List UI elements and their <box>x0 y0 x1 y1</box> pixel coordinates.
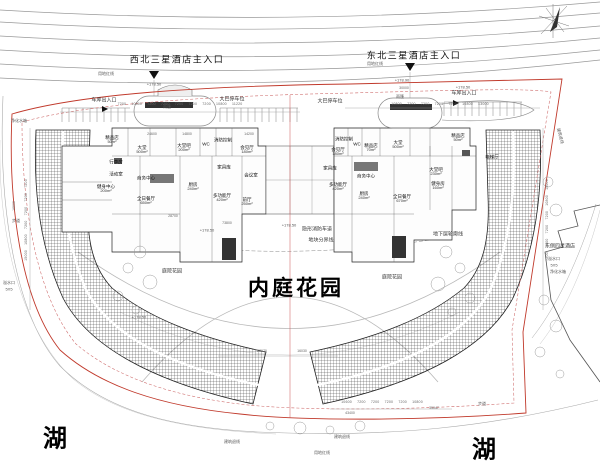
overflow-label: 溢水口 <box>548 256 560 262</box>
overflow-size-label: 5X5 <box>5 287 12 292</box>
walkway-label: 步道 <box>478 401 486 407</box>
elevation-mark: +178.50 <box>456 85 471 90</box>
setback-line-label: 建筑退线 <box>334 434 350 440</box>
basement-outline-label: 地下层轮廓线 <box>433 231 463 238</box>
dimension-text: 14200 <box>244 132 254 136</box>
room-label: 厨房240m² <box>187 182 198 192</box>
dimension-text: 30000 <box>399 86 409 90</box>
dimension-text: 28700 <box>168 214 178 218</box>
canopy-label: 雨篷 <box>396 94 404 100</box>
room-label: 健身房160m² <box>431 181 445 191</box>
room-label: WC <box>353 141 361 146</box>
water-tank-label: 净化水箱 <box>550 269 566 275</box>
overflow-size-label: 5X5 <box>550 263 557 268</box>
red-line-label: 用地红线 <box>314 450 330 456</box>
west-garage-arrow-icon <box>102 106 108 112</box>
adjacent-building-outline <box>545 205 600 382</box>
room-label: 消防控制 <box>214 137 232 142</box>
west-building <box>62 128 266 262</box>
lake-label-east: 湖 <box>472 430 496 465</box>
east-hotel-label: 东侧四星酒店 <box>545 243 575 250</box>
dimension-text: 7200 7200 7200 7200 10800 15000 <box>545 179 549 261</box>
room-label: 家具库 <box>323 165 337 170</box>
room-label: 精品店70m² <box>364 143 378 153</box>
room-label: 全日餐厅670m² <box>393 194 411 204</box>
courtyard-garden-label: 庭院花园 <box>162 268 182 275</box>
red-line-label: 用地红线 <box>98 71 114 77</box>
walkway-label: 步道 <box>12 218 20 224</box>
dimension-text: 43400 <box>345 411 355 415</box>
dimension-text: 24600 <box>147 132 157 136</box>
room-label: 大堂500m² <box>136 145 147 155</box>
room-label: 会见厅180m² <box>331 147 345 157</box>
room-label: 行李房 <box>109 159 123 164</box>
room-label: 多功能厅420m² <box>329 182 347 192</box>
ne-entrance-label: 东北三星酒店主入口 <box>367 49 462 62</box>
dimension-text: 10000 <box>12 201 16 211</box>
room-label: 全日餐厅650m² <box>137 196 155 206</box>
elevation-mark: +178.50 <box>282 223 297 228</box>
property-red-line <box>11 79 562 419</box>
room-label: 商务中心 <box>137 175 155 180</box>
elevation-mark: +178.50 <box>132 315 147 320</box>
water-tank-label: 净化水箱 <box>11 118 27 124</box>
dimension-text: 73800 <box>222 221 232 225</box>
site-plan: 西北三星酒店主入口 东北三星酒店主入口 用地红线 用地红线 用地红线 建筑退线 … <box>0 0 600 471</box>
red-line-label: 用地红线 <box>367 61 383 67</box>
garage-entrance-label: 车库出入口 <box>451 90 476 97</box>
center-link-block <box>266 146 334 214</box>
dimension-text: 10600 7200 7200 7200 7200 10800 <box>341 400 423 404</box>
setback-line-label: 建筑退线 <box>224 439 240 445</box>
elevation-mark: +178.50 <box>200 228 215 233</box>
dimension-text: 16030 <box>297 349 307 353</box>
room-label: 会议室 <box>244 172 258 177</box>
room-label: 厨房240m² <box>358 191 369 201</box>
room-label: 大堂500m² <box>392 140 403 150</box>
lake-label-west: 湖 <box>43 419 67 454</box>
public-buildings <box>62 128 476 262</box>
dimension-text: 10800 7200 7200 7200 7200 10800 13000 <box>391 102 489 106</box>
dimension-text: 35047 <box>429 406 439 410</box>
elevation-mark: +178.90 <box>395 78 410 83</box>
dimension-text: 15000 10800 7200 7200 7200 7200 <box>24 179 28 261</box>
site-plan-drawing <box>0 0 600 471</box>
red-boundary-lines <box>11 79 562 419</box>
room-label: 前厅250m² <box>241 197 252 207</box>
fire-lane-label: 隐形消防车道 <box>302 226 332 233</box>
dimension-text: 14800 <box>182 132 192 136</box>
room-label: 电梯厅 <box>485 154 499 159</box>
overflow-label: 溢水口 <box>3 280 15 286</box>
room-label: 精品店50m² <box>105 135 119 145</box>
room-label: 会见厅180m² <box>240 145 254 155</box>
bus-parking-label: 大巴停车位 <box>317 98 342 105</box>
room-label: 多功能厅420m² <box>213 193 231 203</box>
inner-garden-title: 内庭花园 <box>248 272 344 302</box>
room-label: 家具库 <box>217 164 231 169</box>
nw-entrance-label: 西北三星酒店主入口 <box>130 53 225 66</box>
room-label: 消防控制 <box>335 136 353 141</box>
setback-dashed-line <box>22 90 551 409</box>
elevation-mark: +178.50 <box>147 82 162 87</box>
courtyard-garden-label: 庭院花园 <box>382 274 402 281</box>
room-label: 健身中心200m² <box>97 184 115 194</box>
nw-entrance-arrow-icon <box>149 71 159 79</box>
room-label: 大堂吧200m² <box>177 143 191 153</box>
room-label: 活动室 <box>109 171 123 176</box>
garage-entrance-label: 车库出入口 <box>91 97 116 104</box>
ne-entrance-arrow-icon <box>405 63 415 71</box>
room-label: 精品店50m² <box>451 133 465 143</box>
room-label: WC <box>202 141 210 146</box>
dimension-text: 22070 <box>257 349 267 353</box>
road-lines <box>0 2 600 83</box>
north-compass-icon <box>539 4 569 38</box>
room-label: 大堂吧230m² <box>429 167 443 177</box>
dimension-text: 7200 10800 7200 7200 7200 7200 7200 1080… <box>118 102 243 106</box>
parcel-line-label: 地块分界线 <box>308 237 333 244</box>
room-label: 商务中心 <box>357 173 375 178</box>
